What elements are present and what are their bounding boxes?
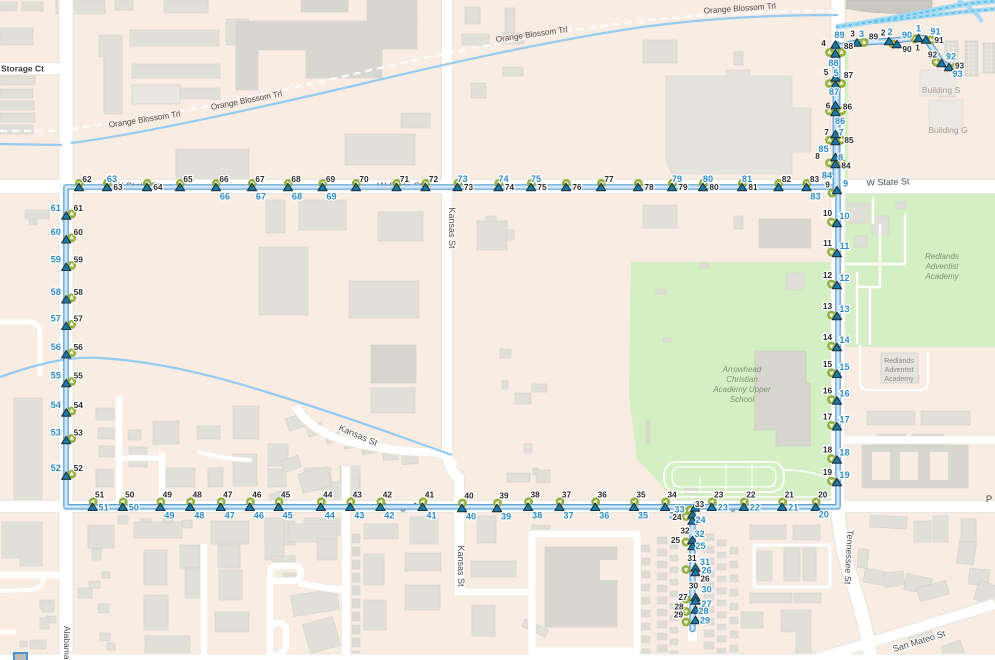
svg-text:42: 42 [384,510,394,520]
svg-text:Alabama St: Alabama St [62,626,72,660]
svg-text:32: 32 [680,526,690,536]
svg-text:47: 47 [223,489,233,499]
svg-text:28: 28 [698,606,708,616]
svg-text:42: 42 [383,489,393,499]
svg-text:22: 22 [750,502,760,512]
svg-text:39: 39 [499,491,509,501]
svg-text:54: 54 [74,400,84,410]
svg-text:16: 16 [823,386,833,396]
svg-text:44: 44 [325,510,336,520]
svg-text:4: 4 [821,38,826,48]
svg-text:Academy: Academy [884,376,914,383]
svg-text:41: 41 [425,489,435,499]
svg-text:55: 55 [74,371,84,381]
svg-text:39: 39 [501,512,511,522]
svg-text:54: 54 [51,400,62,410]
svg-text:17: 17 [823,411,833,421]
svg-text:W State St: W State St [866,176,910,188]
svg-text:47: 47 [225,510,235,520]
svg-text:58: 58 [51,287,61,297]
svg-text:34: 34 [667,489,677,499]
svg-text:29: 29 [700,616,710,626]
svg-text:Building S: Building S [922,85,961,95]
svg-text:Building G: Building G [928,125,967,135]
svg-text:83: 83 [810,174,820,184]
svg-text:24: 24 [672,512,682,522]
svg-text:52: 52 [51,463,61,473]
svg-text:1: 1 [915,43,920,53]
svg-text:30: 30 [689,581,699,591]
svg-text:89: 89 [834,30,844,40]
svg-text:10: 10 [839,211,849,221]
svg-text:51: 51 [95,489,105,499]
svg-text:35: 35 [636,489,646,499]
svg-text:26: 26 [701,566,711,576]
svg-text:School: School [730,395,755,404]
svg-text:36: 36 [599,510,609,520]
svg-text:41: 41 [426,510,436,520]
svg-text:35: 35 [638,510,648,520]
svg-text:40: 40 [466,512,476,522]
svg-text:51: 51 [98,502,108,512]
svg-text:52: 52 [74,463,84,473]
svg-text:13: 13 [823,301,833,311]
svg-text:Adventist: Adventist [885,367,914,374]
svg-text:9: 9 [843,179,848,189]
svg-text:88: 88 [844,41,854,51]
svg-text:7: 7 [838,128,843,138]
svg-text:87: 87 [844,70,854,80]
svg-text:83: 83 [810,192,820,202]
svg-text:Adventist: Adventist [925,262,960,271]
svg-text:69: 69 [326,174,336,184]
svg-text:66: 66 [219,174,229,184]
svg-text:3: 3 [850,29,855,39]
svg-text:16: 16 [839,389,849,399]
svg-text:18: 18 [823,445,833,455]
svg-text:48: 48 [193,489,203,499]
svg-text:70: 70 [359,174,369,184]
svg-text:3: 3 [859,29,864,39]
svg-text:2: 2 [881,28,886,38]
svg-text:19: 19 [823,467,833,477]
svg-text:73: 73 [457,174,467,184]
svg-text:50: 50 [129,502,139,512]
svg-text:90: 90 [902,30,912,40]
svg-text:71: 71 [400,174,410,184]
svg-text:Redlands: Redlands [925,252,959,261]
svg-text:88: 88 [828,58,838,68]
svg-text:20: 20 [818,489,828,499]
svg-text:90: 90 [902,44,912,54]
svg-text:23: 23 [718,502,728,512]
svg-text:Kansas St: Kansas St [447,207,457,249]
svg-text:65: 65 [183,174,193,184]
svg-text:68: 68 [292,192,302,202]
svg-text:22: 22 [746,489,756,499]
svg-text:61: 61 [51,203,61,213]
svg-text:62: 62 [82,174,92,184]
svg-text:Christian: Christian [726,375,758,384]
svg-text:85: 85 [818,144,828,154]
svg-text:31: 31 [687,553,697,563]
svg-text:Redlands: Redlands [884,358,914,365]
svg-text:40: 40 [464,491,474,501]
svg-text:59: 59 [74,254,84,264]
svg-text:60: 60 [51,227,61,237]
svg-text:46: 46 [252,489,262,499]
svg-text:12: 12 [839,273,849,283]
svg-text:20: 20 [819,509,829,519]
svg-text:15: 15 [839,362,849,372]
svg-text:13: 13 [839,304,849,314]
svg-text:63: 63 [107,174,117,184]
svg-text:27: 27 [678,592,688,602]
svg-text:87: 87 [829,87,839,97]
svg-text:2: 2 [887,27,892,37]
svg-text:36: 36 [598,489,608,499]
svg-text:66: 66 [220,192,230,202]
svg-text:37: 37 [563,510,573,520]
svg-text:Arrowhead: Arrowhead [722,365,762,374]
svg-text:45: 45 [282,510,292,520]
svg-text:78: 78 [644,182,654,192]
svg-text:61: 61 [74,203,84,213]
svg-text:6: 6 [826,101,831,111]
svg-text:17: 17 [839,414,849,424]
svg-text:14: 14 [823,332,833,342]
svg-text:56: 56 [74,342,84,352]
svg-text:76: 76 [572,182,582,192]
svg-text:15: 15 [823,359,833,369]
svg-text:48: 48 [194,510,204,520]
svg-text:11: 11 [840,241,850,251]
svg-text:49: 49 [163,489,173,499]
svg-text:81: 81 [742,174,752,184]
svg-text:93: 93 [952,69,962,79]
svg-text:57: 57 [51,313,61,323]
svg-text:92: 92 [928,50,938,60]
svg-text:49: 49 [164,510,174,520]
svg-text:64: 64 [153,182,163,192]
svg-text:75: 75 [531,174,541,184]
svg-text:74: 74 [498,174,509,184]
svg-text:25: 25 [695,541,705,551]
svg-text:86: 86 [835,116,845,126]
svg-text:86: 86 [843,102,853,112]
svg-text:9: 9 [825,180,830,190]
svg-text:50: 50 [125,489,135,499]
svg-text:55: 55 [51,371,61,381]
svg-text:91: 91 [934,35,944,45]
svg-text:23: 23 [714,489,724,499]
svg-text:79: 79 [672,174,682,184]
svg-text:89: 89 [869,32,879,42]
svg-text:56: 56 [51,342,61,352]
svg-text:11: 11 [823,238,832,248]
svg-text:59: 59 [51,254,61,264]
svg-text:58: 58 [74,287,84,297]
svg-text:Academy Upper: Academy Upper [712,385,771,394]
svg-text:38: 38 [530,489,540,499]
svg-text:1: 1 [916,24,921,34]
svg-text:12: 12 [823,270,833,280]
svg-text:29: 29 [674,610,684,620]
svg-text:10: 10 [823,208,833,218]
svg-text:72: 72 [429,174,439,184]
svg-text:19: 19 [839,470,849,480]
svg-text:5: 5 [824,67,829,77]
svg-text:85: 85 [844,135,854,145]
svg-text:25: 25 [671,535,681,545]
svg-text:53: 53 [74,428,84,438]
svg-text:60: 60 [74,227,84,237]
svg-text:30: 30 [701,585,711,595]
svg-text:69: 69 [326,192,336,202]
svg-text:45: 45 [281,489,291,499]
svg-text:67: 67 [256,192,266,202]
svg-text:80: 80 [703,174,713,184]
svg-text:82: 82 [782,174,792,184]
svg-text:Kansas St: Kansas St [456,545,466,587]
svg-text:43: 43 [353,489,363,499]
svg-text:53: 53 [51,428,61,438]
svg-text:24: 24 [695,515,706,525]
svg-text:8: 8 [815,151,820,161]
svg-text:Storage Ct: Storage Ct [1,64,44,74]
svg-text:18: 18 [839,448,849,458]
svg-text:46: 46 [254,510,264,520]
svg-text:84: 84 [822,171,833,181]
svg-text:7: 7 [824,127,829,137]
svg-text:38: 38 [532,510,542,520]
svg-text:P: P [986,494,992,505]
svg-text:57: 57 [74,313,84,323]
svg-text:33: 33 [695,499,705,509]
svg-text:21: 21 [785,489,795,499]
svg-text:77: 77 [604,174,614,184]
svg-text:Academy: Academy [924,272,959,281]
svg-text:67: 67 [255,174,265,184]
svg-text:5: 5 [833,68,838,78]
svg-text:14: 14 [839,335,850,345]
svg-text:37: 37 [562,489,572,499]
svg-text:31: 31 [700,557,710,567]
svg-text:68: 68 [291,174,301,184]
svg-text:8: 8 [838,153,843,163]
svg-text:43: 43 [354,510,364,520]
svg-text:21: 21 [788,502,798,512]
svg-text:44: 44 [323,489,333,499]
svg-text:32: 32 [694,529,704,539]
